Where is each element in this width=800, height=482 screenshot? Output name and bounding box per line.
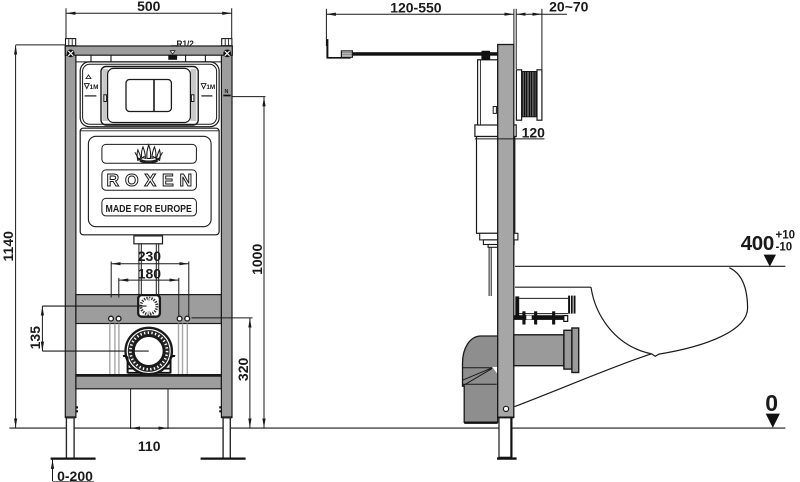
svg-text:500: 500: [137, 0, 161, 14]
svg-text:1000: 1000: [249, 244, 265, 275]
svg-text:1M: 1M: [206, 84, 215, 91]
svg-text:MADE FOR EUROPE: MADE FOR EUROPE: [106, 204, 193, 215]
svg-text:1M: 1M: [90, 84, 99, 91]
svg-text:20~70: 20~70: [549, 0, 589, 15]
svg-text:0: 0: [765, 390, 778, 416]
svg-text:0-200: 0-200: [57, 468, 93, 482]
svg-text:R1/2: R1/2: [177, 39, 195, 48]
svg-text:1140: 1140: [0, 231, 16, 262]
svg-text:110: 110: [138, 438, 161, 454]
svg-text:120: 120: [522, 124, 546, 140]
svg-text:120-550: 120-550: [390, 0, 442, 15]
svg-text:230: 230: [138, 248, 162, 264]
svg-text:-10: -10: [776, 242, 793, 254]
svg-text:N: N: [224, 89, 228, 95]
svg-text:320: 320: [235, 358, 251, 382]
svg-text:180: 180: [138, 266, 162, 282]
svg-text:+10: +10: [776, 229, 796, 241]
svg-text:400: 400: [741, 232, 774, 255]
svg-text:135: 135: [27, 326, 43, 350]
